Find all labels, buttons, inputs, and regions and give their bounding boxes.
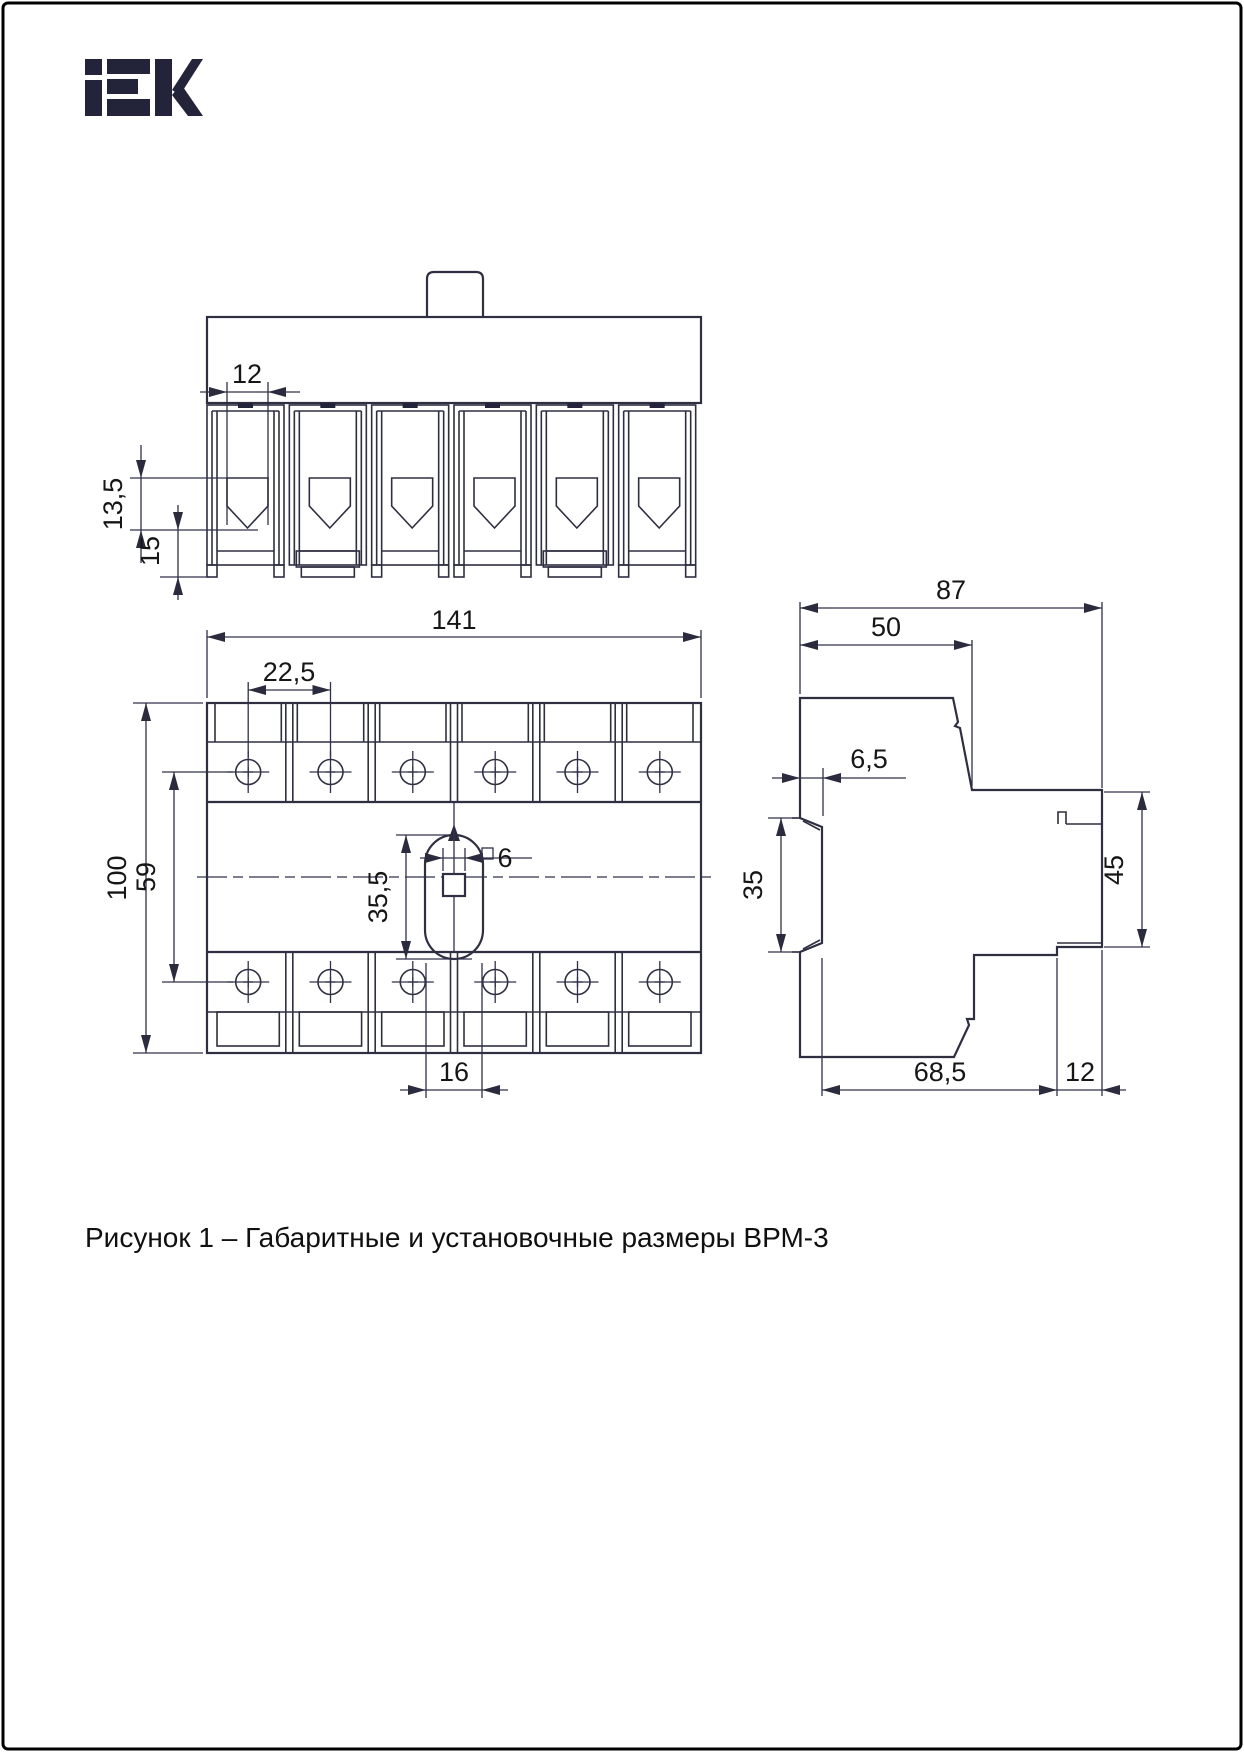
- iek-logo-icon: [85, 59, 203, 116]
- dim-terminal-recess-depth: 13,5: [98, 478, 128, 531]
- dim-screw-rows-spacing: 59: [131, 862, 161, 892]
- dim-din-clip-lip: 6,5: [850, 744, 888, 774]
- dim-terminal-block-height: 45: [1099, 855, 1129, 885]
- dim-pole-pitch: 22,5: [263, 657, 316, 687]
- page-border: [3, 3, 1241, 1749]
- dim-terminal-block-depth-side: 12: [1065, 1057, 1095, 1087]
- dim-overall-depth: 87: [936, 575, 966, 605]
- dim-overall-height: 100: [102, 855, 132, 900]
- top-view: 12 13,5 15: [98, 272, 701, 600]
- dim-overall-width: 141: [431, 605, 476, 635]
- front-view: 141 22,5 100 59 35,5: [102, 605, 711, 1098]
- dim-terminal-block-depth: 15: [135, 536, 165, 566]
- dim-handle-slot-length: 35,5: [363, 871, 393, 924]
- dim-handle-slot-width: 16: [439, 1057, 469, 1087]
- dim-upper-body-depth: 50: [871, 612, 901, 642]
- technical-drawing: 12 13,5 15: [0, 0, 1244, 1752]
- dim-handle-square-size: 6: [497, 843, 512, 873]
- document-page: 12 13,5 15: [0, 0, 1244, 1752]
- dim-lower-body-depth: 68,5: [914, 1057, 967, 1087]
- dim-din-rail-height: 35: [738, 870, 768, 900]
- figure-caption: Рисунок 1 – Габаритные и установочные ра…: [85, 1222, 829, 1253]
- side-view: 87 50 6,5 35 45 68,5: [738, 575, 1150, 1096]
- dim-terminal-opening-width: 12: [232, 359, 262, 389]
